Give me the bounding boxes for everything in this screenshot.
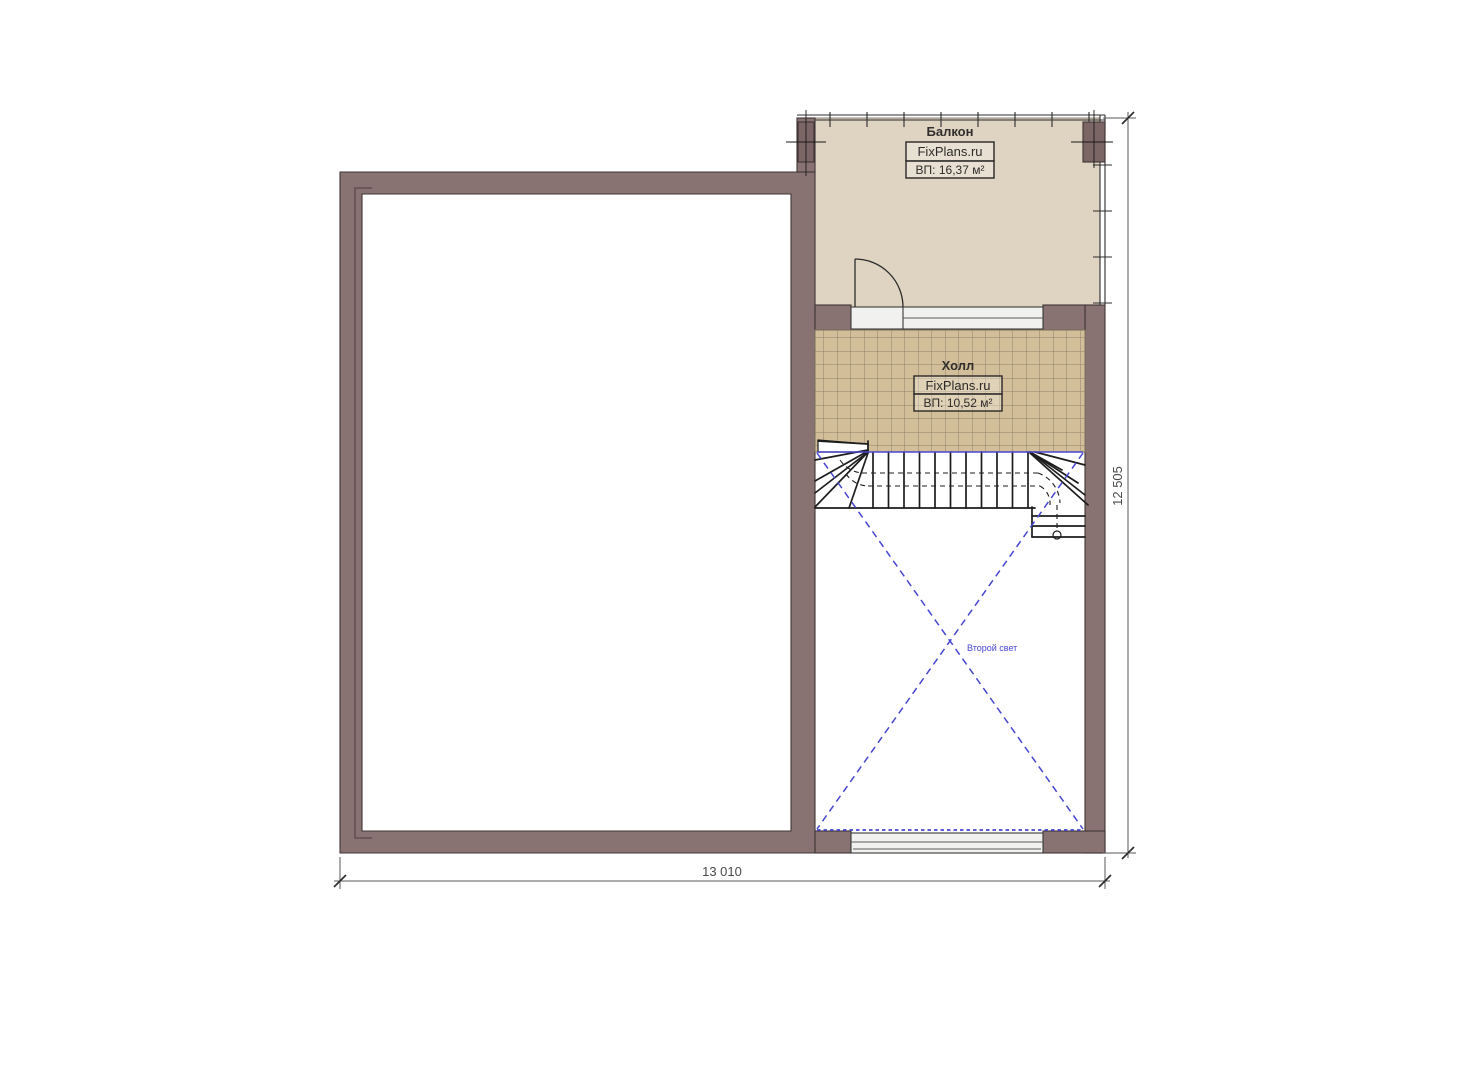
balcony-brand-label: FixPlans.ru [917,144,982,159]
stair-straight-flight [815,452,1035,508]
hall-area-label: ВП: 10,52 м² [924,396,993,410]
stair-right-winder [1030,452,1088,505]
bottom-window-frame [851,833,1043,853]
top-wall-left-segment [815,305,851,330]
balcony [797,112,1112,307]
dimension-bottom: 13 010 [334,857,1111,889]
left-room-walls [340,172,815,853]
dimension-width-text: 13 010 [702,864,742,879]
dimension-height-text: 12 505 [1110,466,1125,506]
balcony-name-label: Балкон [927,124,974,139]
bottom-wall-right-segment [1043,831,1105,853]
floor-plan-canvas: Второй свет Балкон FixPlans.ru ВП: 16,37… [0,0,1473,1080]
top-wall-right-segment [1043,305,1085,330]
bottom-wall-left-segment [815,831,851,853]
bottom-window [851,833,1043,853]
second-light-label: Второй свет [967,643,1017,653]
hall-name-label: Холл [942,358,975,373]
balcony-area-label: ВП: 16,37 м² [916,163,985,177]
right-wall [1085,305,1105,853]
staircase [815,440,1088,539]
stair-lower-flight [1032,507,1085,537]
dimension-right: 12 505 [1103,112,1136,859]
hall-brand-label: FixPlans.ru [925,378,990,393]
void-diagonal-2 [817,453,1083,829]
floor-plan-page: Второй свет Балкон FixPlans.ru ВП: 16,37… [0,0,1473,1080]
